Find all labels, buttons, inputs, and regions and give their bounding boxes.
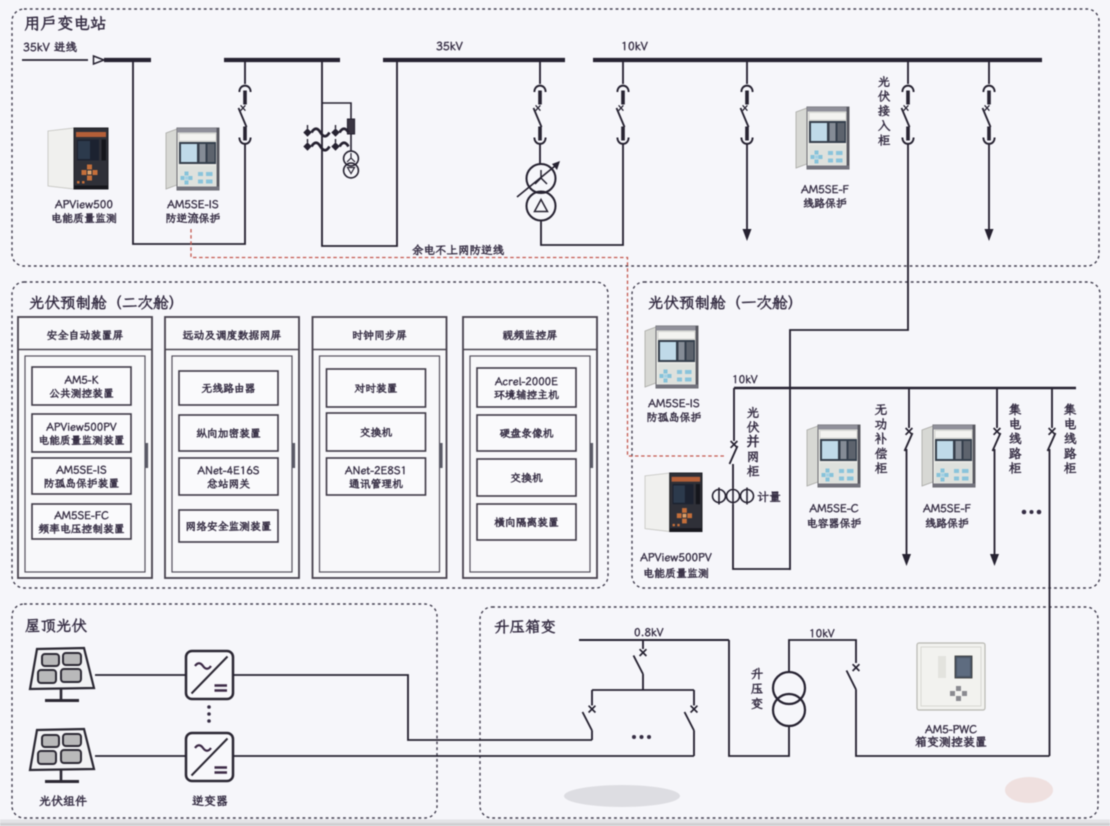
svg-text:环境辅控主机: 环境辅控主机 <box>494 389 559 403</box>
svg-text:10kV: 10kV <box>809 627 835 641</box>
svg-text:计量: 计量 <box>757 490 781 505</box>
svg-text:硬盘录像机: 硬盘录像机 <box>500 427 554 441</box>
svg-text:无功补偿柜: 无功补偿柜 <box>875 401 888 476</box>
svg-text:10kV: 10kV <box>732 373 758 387</box>
svg-text:AM5-K: AM5-K <box>64 374 99 388</box>
svg-text:Acrel-2000E: Acrel-2000E <box>494 375 558 389</box>
svg-text:光伏预制舱（二次舱）: 光伏预制舱（二次舱） <box>29 293 184 313</box>
svg-text:35kV: 35kV <box>436 39 463 54</box>
svg-text:APView500PV: APView500PV <box>639 551 712 565</box>
svg-text:升压变: 升压变 <box>751 665 764 712</box>
svg-text:屋顶光伏: 屋顶光伏 <box>25 616 88 636</box>
svg-text:APView500: APView500 <box>54 198 113 212</box>
svg-text:线路保护: 线路保护 <box>803 197 847 211</box>
svg-text:视频监控屏: 视频监控屏 <box>503 329 558 343</box>
svg-text:安全自动装置屏: 安全自动装置屏 <box>47 329 124 343</box>
svg-text:对时装置: 对时装置 <box>354 382 397 396</box>
svg-text:线路保护: 线路保护 <box>925 517 969 531</box>
svg-text:纵向加密装置: 纵向加密装置 <box>196 427 261 441</box>
svg-text:横向隔离装置: 横向隔离装置 <box>494 516 559 530</box>
svg-text:总站网关: 总站网关 <box>207 478 250 492</box>
svg-text:0.8kV: 0.8kV <box>634 626 664 640</box>
svg-text:AM5SE-F: AM5SE-F <box>922 502 971 516</box>
svg-text:AM5SE-C: AM5SE-C <box>809 502 859 516</box>
svg-text:逆变器: 逆变器 <box>192 794 228 809</box>
svg-text:交换机: 交换机 <box>510 472 543 486</box>
svg-text:电容器保护: 电容器保护 <box>807 517 862 531</box>
svg-text:用户变电站: 用户变电站 <box>24 12 107 34</box>
svg-text:APView500PV: APView500PV <box>45 421 117 435</box>
svg-text:公共测控装置: 公共测控装置 <box>49 387 114 401</box>
svg-text:远动及调度数据网屏: 远动及调度数据网屏 <box>183 329 282 343</box>
svg-text:网络安全监测装置: 网络安全监测装置 <box>185 520 272 534</box>
svg-text:时钟同步屏: 时钟同步屏 <box>352 329 407 343</box>
svg-text:AM5SE-IS: AM5SE-IS <box>647 397 700 411</box>
svg-text:ANet-4E16S: ANet-4E16S <box>197 464 260 478</box>
svg-text:电能质量监测: 电能质量监测 <box>643 567 709 581</box>
svg-text:升压箱变: 升压箱变 <box>494 617 556 637</box>
svg-text:无线路由器: 无线路由器 <box>202 382 256 396</box>
svg-text:AM5SE-F: AM5SE-F <box>800 183 849 197</box>
svg-text:光伏组件: 光伏组件 <box>39 794 87 809</box>
svg-text:通讯管理机: 通讯管理机 <box>349 478 403 492</box>
svg-text:AM5SE-IS: AM5SE-IS <box>166 198 219 212</box>
svg-text:光伏接入柜: 光伏接入柜 <box>878 73 891 148</box>
svg-text:AM5SE-IS: AM5SE-IS <box>55 464 107 478</box>
svg-text:集电线路柜: 集电线路柜 <box>1064 401 1077 476</box>
svg-text:交换机: 交换机 <box>360 426 393 440</box>
svg-text:光伏预制舱（一次舱）: 光伏预制舱（一次舱） <box>648 293 803 313</box>
svg-text:余电不上网防逆线: 余电不上网防逆线 <box>412 243 504 258</box>
svg-text:频率电压控制装置: 频率电压控制装置 <box>38 523 125 537</box>
svg-text:集电线路柜: 集电线路柜 <box>1009 401 1022 476</box>
svg-text:ANet-2E8S1: ANet-2E8S1 <box>344 464 407 478</box>
svg-text:AM5SE-FC: AM5SE-FC <box>53 509 109 523</box>
svg-text:10kV: 10kV <box>621 39 648 54</box>
svg-text:电能质量监测装置: 电能质量监测装置 <box>38 434 125 448</box>
svg-text:电能质量监测: 电能质量监测 <box>51 212 117 226</box>
svg-text:35kV 进线: 35kV 进线 <box>23 40 77 55</box>
svg-text:防孤岛保护装置: 防孤岛保护装置 <box>44 477 120 491</box>
svg-text:箱变测控装置: 箱变测控装置 <box>915 735 987 750</box>
svg-text:光伏并网柜: 光伏并网柜 <box>747 404 760 479</box>
svg-text:防逆流保护: 防逆流保护 <box>166 211 221 226</box>
svg-text:防孤岛保护: 防孤岛保护 <box>647 411 702 425</box>
